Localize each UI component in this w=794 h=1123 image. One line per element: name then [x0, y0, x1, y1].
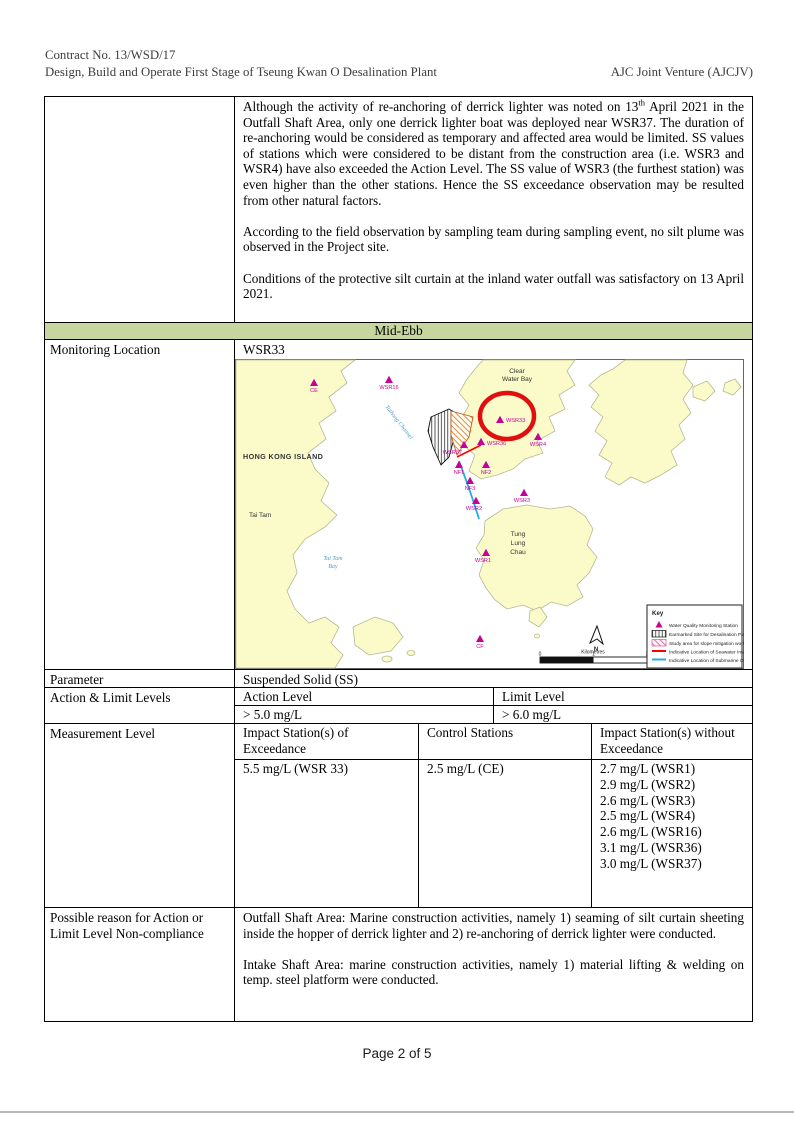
- remarks-paragraph-1: Although the activity of re-anchoring of…: [243, 99, 744, 208]
- page-header: Contract No. 13/WSD/17 Design, Build and…: [45, 47, 753, 81]
- remarks-paragraph-2: According to the field observation by sa…: [243, 224, 744, 255]
- monitoring-location-cell: WSR33: [235, 340, 752, 669]
- measurement-row: Measurement Level Impact Station(s) of E…: [45, 723, 752, 907]
- possible-reason-row: Possible reason for Action or Limit Leve…: [45, 907, 752, 1021]
- without-exceedance-item: 2.6 mg/L (WSR16): [600, 824, 744, 840]
- svg-text:WSR33: WSR33: [506, 418, 525, 424]
- parameter-value: Suspended Solid (SS): [235, 670, 752, 687]
- land-islet-3: [535, 634, 540, 638]
- monitoring-location-label: Monitoring Location: [45, 340, 235, 669]
- contract-number: Contract No. 13/WSD/17: [45, 47, 753, 64]
- measurement-label: Measurement Level: [45, 724, 235, 907]
- svg-text:CF: CF: [476, 644, 484, 650]
- parameter-label: Parameter: [45, 670, 235, 687]
- svg-text:Water Quality Monitoring Stati: Water Quality Monitoring Station: [669, 623, 738, 629]
- page-footer: Page 2 of 5: [0, 1046, 794, 1061]
- possible-reason-paragraph-1: Outfall Shaft Area: Marine construction …: [243, 910, 744, 941]
- svg-text:NF3: NF3: [465, 486, 476, 492]
- land-tung-lung-chau: [476, 505, 597, 611]
- svg-text:WSR2: WSR2: [466, 506, 482, 512]
- remarks-label-cell: [45, 97, 235, 322]
- parameter-row: Parameter Suspended Solid (SS): [45, 669, 752, 687]
- station-wsr33: WSR33: [496, 416, 525, 424]
- svg-text:Indicative Location of Submari: Indicative Location of Submarine Outfall: [669, 658, 744, 664]
- svg-text:CE: CE: [310, 388, 318, 394]
- svg-text:1: 1: [592, 652, 595, 658]
- without-exceedance-item: 2.5 mg/L (WSR4): [600, 808, 744, 824]
- label-hong-kong-island: HONG KONG ISLAND: [243, 452, 323, 461]
- svg-text:WSR4: WSR4: [530, 442, 546, 448]
- action-limit-label: Action & Limit Levels: [45, 688, 235, 723]
- without-exceedance-item: 2.6 mg/L (WSR3): [600, 793, 744, 809]
- impact-without-exceedance-header: Impact Station(s) without Exceedance: [592, 724, 752, 759]
- without-exceedance-item: 3.1 mg/L (WSR36): [600, 840, 744, 856]
- monitoring-location-map: CE WSR16 WSR33 WSR4 WSR36 WSR37 NF1 NF2 …: [235, 359, 744, 669]
- key-title: Key: [652, 610, 664, 617]
- land-islet-2: [407, 651, 415, 656]
- action-level-value: > 5.0 mg/L: [235, 706, 494, 723]
- remarks-row: Although the activity of re-anchoring of…: [45, 97, 752, 322]
- company-name: AJC Joint Venture (AJCJV): [611, 64, 753, 81]
- page-number: Page 2 of 5: [362, 1046, 431, 1061]
- limit-level-value: > 6.0 mg/L: [494, 706, 752, 723]
- control-stations-header: Control Stations: [419, 724, 592, 759]
- key-study-area-icon: [652, 640, 666, 647]
- land-islet-1: [382, 656, 392, 662]
- report-table: Although the activity of re-anchoring of…: [44, 96, 753, 1022]
- action-level-header: Action Level: [235, 688, 494, 705]
- action-limit-row: Action & Limit Levels Action Level Limit…: [45, 687, 752, 723]
- svg-text:Earmarked Site for Desalinatio: Earmarked Site for Desalination Plant: [669, 632, 744, 638]
- impact-without-exceedance-values: 2.7 mg/L (WSR1) 2.9 mg/L (WSR2) 2.6 mg/L…: [592, 760, 752, 907]
- limit-level-header: Limit Level: [494, 688, 752, 705]
- label-tung-lung-chau: TungLungChau: [510, 531, 526, 556]
- without-exceedance-item: 3.0 mg/L (WSR37): [600, 856, 744, 872]
- impact-exceedance-value: 5.5 mg/L (WSR 33): [235, 760, 419, 907]
- svg-text:Indicative Location of Seawate: Indicative Location of Seawater Intake: [669, 650, 744, 656]
- remarks-paragraph-3: Conditions of the protective silt curtai…: [243, 271, 744, 302]
- key-earmarked-site-icon: [652, 631, 666, 638]
- possible-reason-text: Outfall Shaft Area: Marine construction …: [235, 908, 752, 1021]
- svg-text:WSR1: WSR1: [475, 558, 491, 564]
- bottom-divider: [0, 1111, 794, 1113]
- possible-reason-paragraph-2: Intake Shaft Area: marine construction a…: [243, 957, 744, 988]
- svg-text:NF2: NF2: [481, 470, 492, 476]
- without-exceedance-item: 2.7 mg/L (WSR1): [600, 761, 744, 777]
- control-stations-value: 2.5 mg/L (CE): [419, 760, 592, 907]
- svg-text:Study area for slope mitigatio: Study area for slope mitigation works: [669, 641, 744, 647]
- svg-text:WSR3: WSR3: [514, 498, 530, 504]
- map-key-legend: Key Water Quality Monitoring Station Ear…: [647, 605, 744, 668]
- svg-text:WSR36: WSR36: [487, 441, 506, 447]
- without-exceedance-item: 2.9 mg/L (WSR2): [600, 777, 744, 793]
- label-tai-tam: Tai Tam: [249, 512, 271, 519]
- report-page: Contract No. 13/WSD/17 Design, Build and…: [0, 0, 794, 1123]
- svg-text:WSR16: WSR16: [379, 385, 398, 391]
- project-title: Design, Build and Operate First Stage of…: [45, 64, 437, 81]
- possible-reason-label: Possible reason for Action or Limit Leve…: [45, 908, 235, 1021]
- svg-text:NF1: NF1: [454, 470, 465, 476]
- impact-exceedance-header: Impact Station(s) of Exceedance: [235, 724, 419, 759]
- svg-text:WSR37: WSR37: [443, 450, 462, 456]
- monitoring-location-row: Monitoring Location WSR33: [45, 339, 752, 669]
- tide-header-row: Mid-Ebb: [45, 322, 752, 339]
- remarks-text-cell: Although the activity of re-anchoring of…: [235, 97, 752, 322]
- monitoring-location-value: WSR33: [235, 340, 752, 359]
